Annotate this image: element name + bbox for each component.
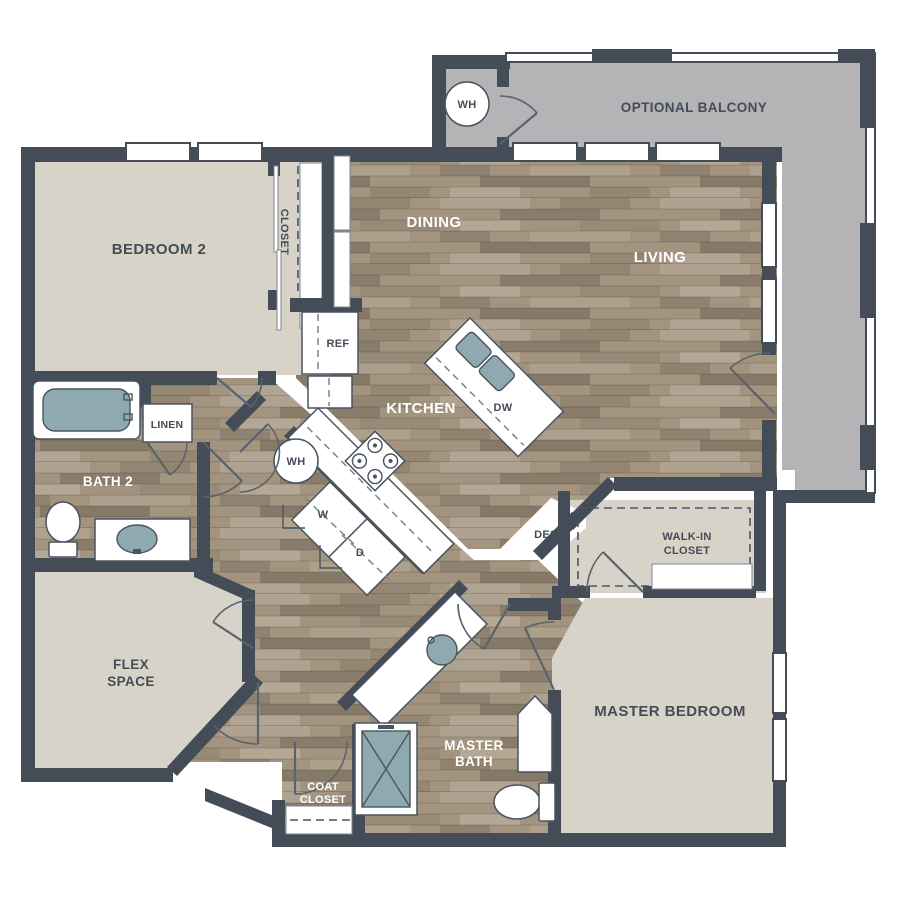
label-ref: REF xyxy=(327,338,350,350)
label-bath2: BATH 2 xyxy=(83,474,133,489)
toilet xyxy=(46,502,80,542)
counter-small xyxy=(308,376,352,408)
label-bedroom2: BEDROOM 2 xyxy=(112,241,206,258)
label-dryer: D xyxy=(356,547,364,559)
walkin-shelf xyxy=(652,564,752,589)
label-flex-2: SPACE xyxy=(107,674,155,689)
master-window xyxy=(773,719,786,781)
master-window xyxy=(773,653,786,713)
living-top-window xyxy=(513,143,577,161)
label-linen: LINEN xyxy=(151,419,184,431)
living-top-window xyxy=(656,143,720,161)
label-coat-2: CLOSET xyxy=(300,794,346,806)
bedroom2-window xyxy=(198,143,262,161)
label-master-bath-1: MASTER xyxy=(444,738,503,753)
bedroom2-window xyxy=(126,143,190,161)
label-master-bath-2: BATH xyxy=(455,754,493,769)
vanity-sink xyxy=(117,525,157,553)
label-coat-1: COAT xyxy=(307,781,339,793)
closet-slider xyxy=(274,166,278,252)
bedroom2-floor xyxy=(33,158,330,375)
label-desk: DESK xyxy=(534,529,566,541)
label-walkin-1: WALK-IN xyxy=(662,531,711,543)
label-living: LIVING xyxy=(634,249,686,266)
living-right-window xyxy=(762,279,776,343)
closet-slider xyxy=(277,250,281,330)
living-right-window xyxy=(762,203,776,267)
label-wh-hall: WH xyxy=(287,456,306,468)
floor-plan-svg: BEDROOM 2 CLOSET DINING LIVING KITCHEN O… xyxy=(0,0,900,900)
label-kitchen: KITCHEN xyxy=(386,400,455,417)
master-toilet-tank xyxy=(539,783,555,821)
master-toilet xyxy=(494,785,540,819)
pantry-cabinet xyxy=(334,232,350,307)
label-optional-balcony: OPTIONAL BALCONY xyxy=(621,100,767,115)
bathtub-basin xyxy=(43,389,130,431)
label-dw: DW xyxy=(494,402,513,414)
label-walkin-2: CLOSET xyxy=(664,545,710,557)
label-flex-1: FLEX xyxy=(113,657,149,672)
label-dining: DINING xyxy=(407,214,462,231)
living-top-window xyxy=(585,143,649,161)
toilet-tank xyxy=(49,542,77,557)
master-sink xyxy=(427,635,457,665)
floor-plan: BEDROOM 2 CLOSET DINING LIVING KITCHEN O… xyxy=(0,0,900,900)
label-washer: W xyxy=(318,509,329,521)
label-master-bedroom: MASTER BEDROOM xyxy=(594,703,745,720)
label-wh-balcony: WH xyxy=(458,99,477,111)
label-closet: CLOSET xyxy=(278,209,290,255)
pantry-cabinet xyxy=(334,156,350,230)
